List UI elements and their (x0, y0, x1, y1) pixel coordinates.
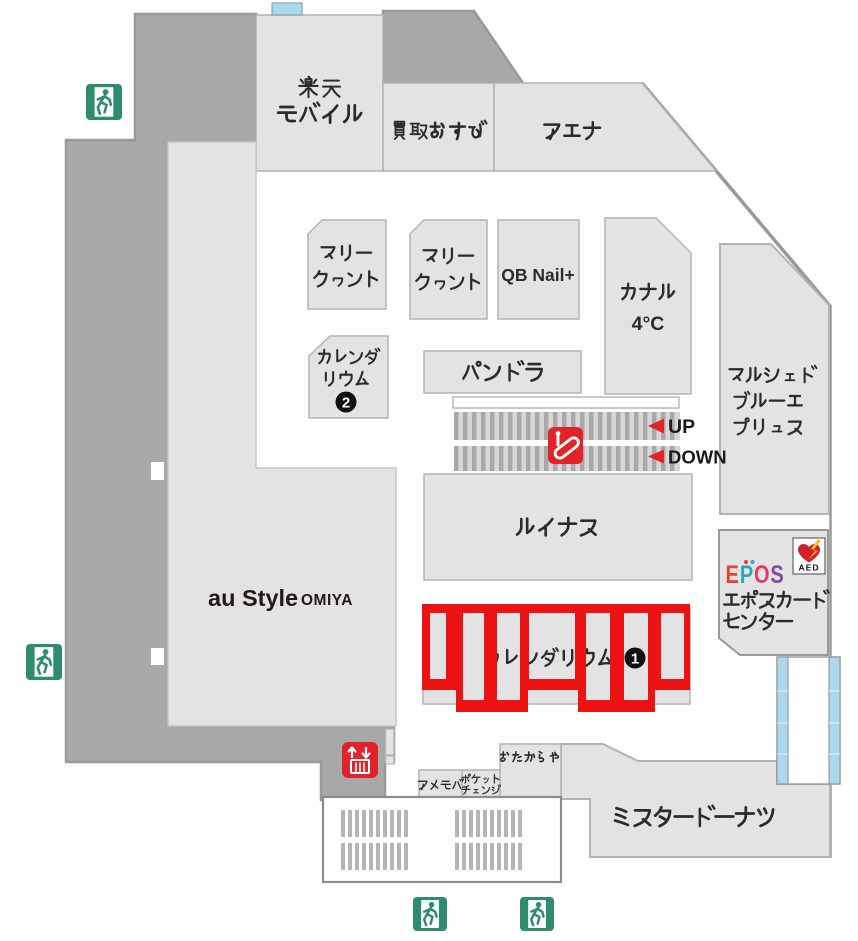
svg-text:O: O (754, 561, 770, 589)
svg-text:2: 2 (342, 395, 350, 412)
svg-text:1: 1 (631, 651, 639, 668)
svg-text:4°C: 4°C (632, 313, 665, 335)
svg-text:QB Nail+: QB Nail+ (501, 265, 574, 285)
svg-text:S: S (770, 561, 783, 589)
svg-text:E: E (726, 561, 739, 589)
svg-text:UP: UP (668, 416, 695, 438)
svg-text:AED: AED (799, 563, 820, 573)
svg-text:OMIYA: OMIYA (301, 592, 353, 609)
svg-text:DOWN: DOWN (668, 447, 727, 468)
svg-text:au Style: au Style (208, 585, 298, 611)
svg-text:P: P (740, 561, 753, 589)
